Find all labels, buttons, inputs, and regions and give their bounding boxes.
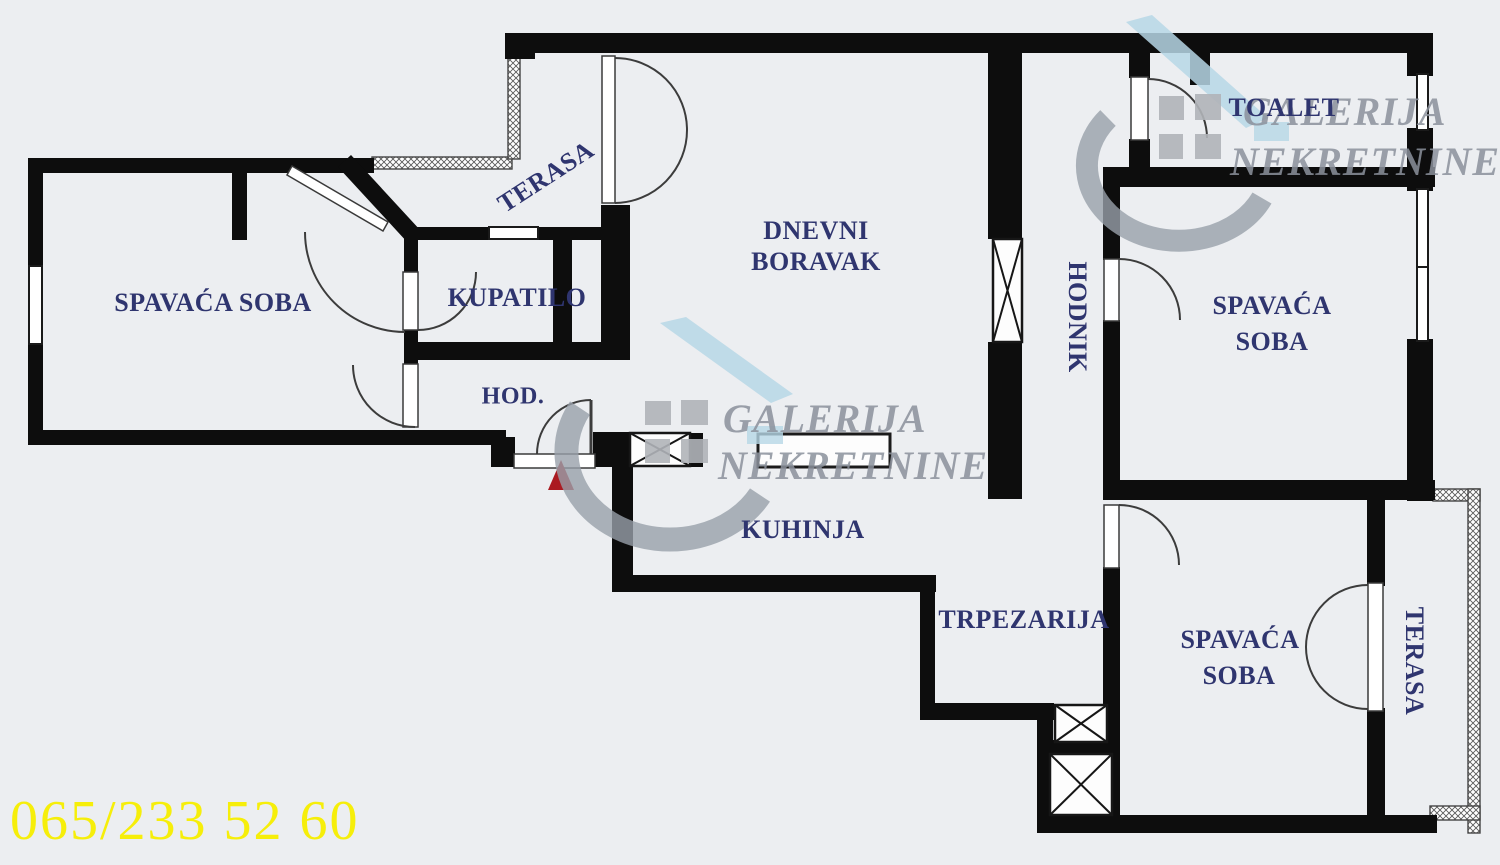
- floor-plan-drawing: [0, 0, 1500, 865]
- door-swing-arcs: [305, 58, 1368, 709]
- walls: [28, 33, 1437, 833]
- door-openings: [287, 56, 1383, 711]
- kitchen-counter: [758, 434, 890, 467]
- floor-plan-image: GALERIJA NEKRETNINE GALERIJA NEKRETNINE …: [0, 0, 1500, 865]
- phone-number: 065/233 52 60: [10, 789, 360, 853]
